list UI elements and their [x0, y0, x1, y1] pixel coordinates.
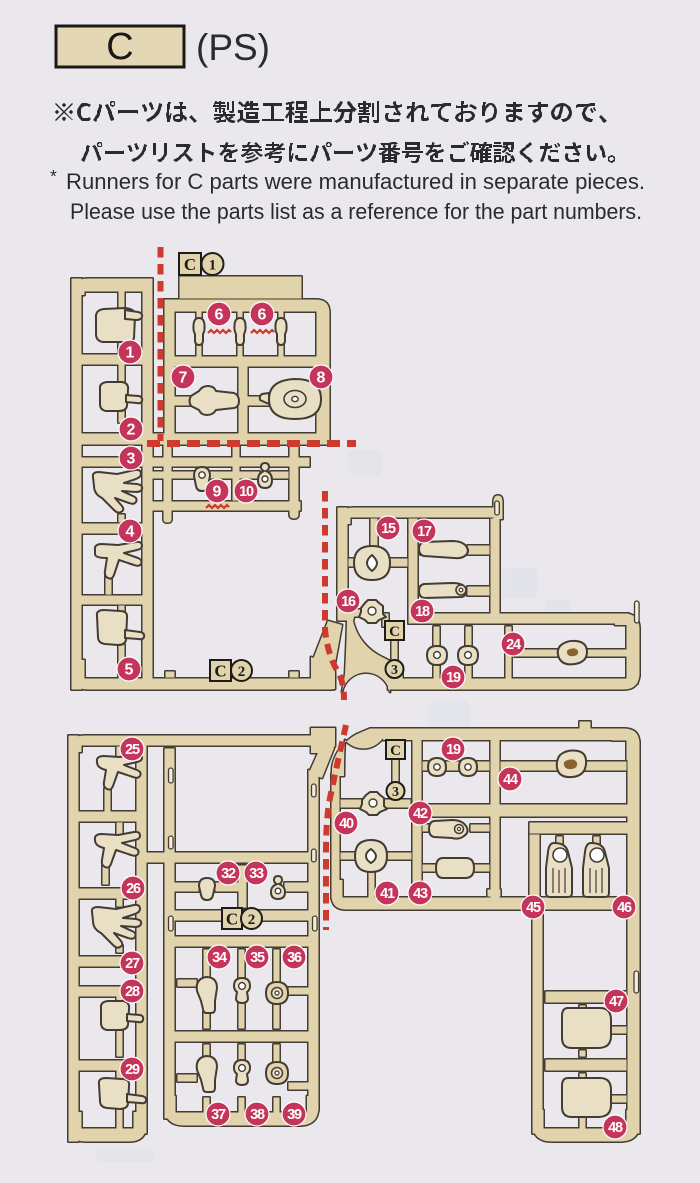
svg-text:29: 29	[125, 1062, 140, 1078]
svg-text:48: 48	[608, 1120, 623, 1136]
svg-text:3: 3	[391, 663, 398, 678]
svg-text:C: C	[214, 662, 226, 681]
svg-text:4: 4	[126, 524, 135, 541]
svg-text:43: 43	[413, 886, 428, 902]
svg-text:41: 41	[380, 886, 395, 902]
svg-text:19: 19	[446, 670, 461, 686]
svg-text:6: 6	[215, 307, 224, 324]
svg-text:35: 35	[250, 950, 265, 966]
svg-text:1: 1	[126, 345, 135, 362]
svg-text:Runners for C parts were manuf: Runners for C parts were manufactured in…	[66, 169, 645, 194]
svg-text:10: 10	[239, 484, 254, 500]
svg-text:C: C	[390, 743, 401, 759]
svg-text:6: 6	[258, 307, 267, 324]
svg-text:2: 2	[127, 422, 136, 439]
svg-text:36: 36	[287, 950, 302, 966]
svg-text:44: 44	[503, 772, 518, 788]
svg-text:*: *	[50, 166, 57, 186]
svg-text:2: 2	[238, 664, 246, 680]
svg-text:16: 16	[341, 594, 356, 610]
svg-text:9: 9	[213, 484, 222, 501]
svg-text:45: 45	[526, 900, 541, 916]
svg-text:24: 24	[506, 637, 521, 653]
svg-text:47: 47	[609, 994, 624, 1010]
svg-text:40: 40	[339, 816, 354, 832]
svg-text:8: 8	[317, 370, 326, 387]
svg-text:38: 38	[250, 1107, 265, 1123]
svg-text:19: 19	[446, 742, 461, 758]
svg-text:46: 46	[617, 900, 632, 916]
svg-text:5: 5	[125, 662, 134, 679]
svg-text:1: 1	[209, 257, 217, 273]
svg-text:15: 15	[381, 521, 396, 537]
svg-text:(PS): (PS)	[196, 27, 270, 68]
svg-text:32: 32	[221, 866, 236, 882]
svg-text:25: 25	[125, 742, 140, 758]
svg-text:2: 2	[248, 912, 256, 928]
svg-text:18: 18	[415, 604, 430, 620]
svg-text:C: C	[184, 255, 196, 274]
svg-text:3: 3	[127, 451, 136, 468]
svg-text:27: 27	[125, 956, 140, 972]
svg-text:39: 39	[287, 1107, 302, 1123]
svg-text:7: 7	[179, 370, 188, 387]
svg-text:Please use the parts list as a: Please use the parts list as a reference…	[70, 199, 642, 224]
svg-text:C: C	[389, 624, 400, 640]
svg-text:34: 34	[212, 950, 227, 966]
svg-text:33: 33	[249, 866, 264, 882]
svg-text:37: 37	[211, 1107, 226, 1123]
svg-text:C: C	[226, 910, 238, 929]
svg-text:28: 28	[125, 984, 140, 1000]
svg-text:17: 17	[417, 524, 432, 540]
svg-text:C: C	[106, 26, 133, 68]
svg-text:26: 26	[126, 881, 141, 897]
svg-text:3: 3	[392, 785, 399, 800]
svg-text:42: 42	[413, 806, 428, 822]
